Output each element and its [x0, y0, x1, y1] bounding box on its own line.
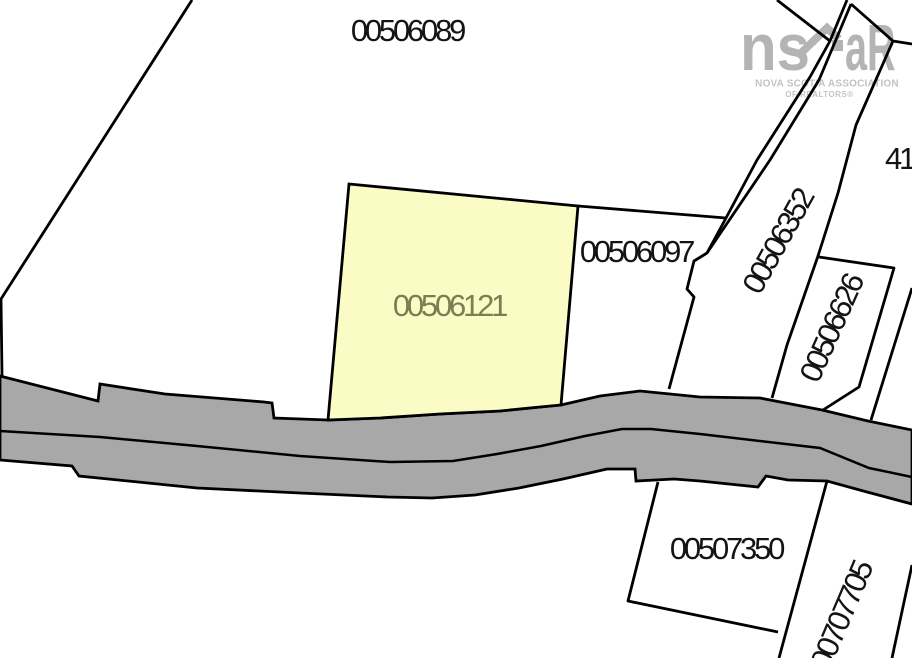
svg-text:00506097: 00506097	[580, 234, 694, 269]
svg-text:NOVA SCOTIA ASSOCIATION: NOVA SCOTIA ASSOCIATION	[755, 79, 899, 90]
svg-text:00506121: 00506121	[393, 288, 507, 323]
svg-text:00506626: 00506626	[793, 269, 871, 388]
svg-text:ns: ns	[740, 11, 810, 84]
svg-text:41: 41	[885, 141, 912, 176]
svg-text:00506089: 00506089	[351, 13, 465, 48]
svg-text:00707705: 00707705	[803, 556, 880, 658]
svg-text:00507350: 00507350	[670, 531, 785, 566]
